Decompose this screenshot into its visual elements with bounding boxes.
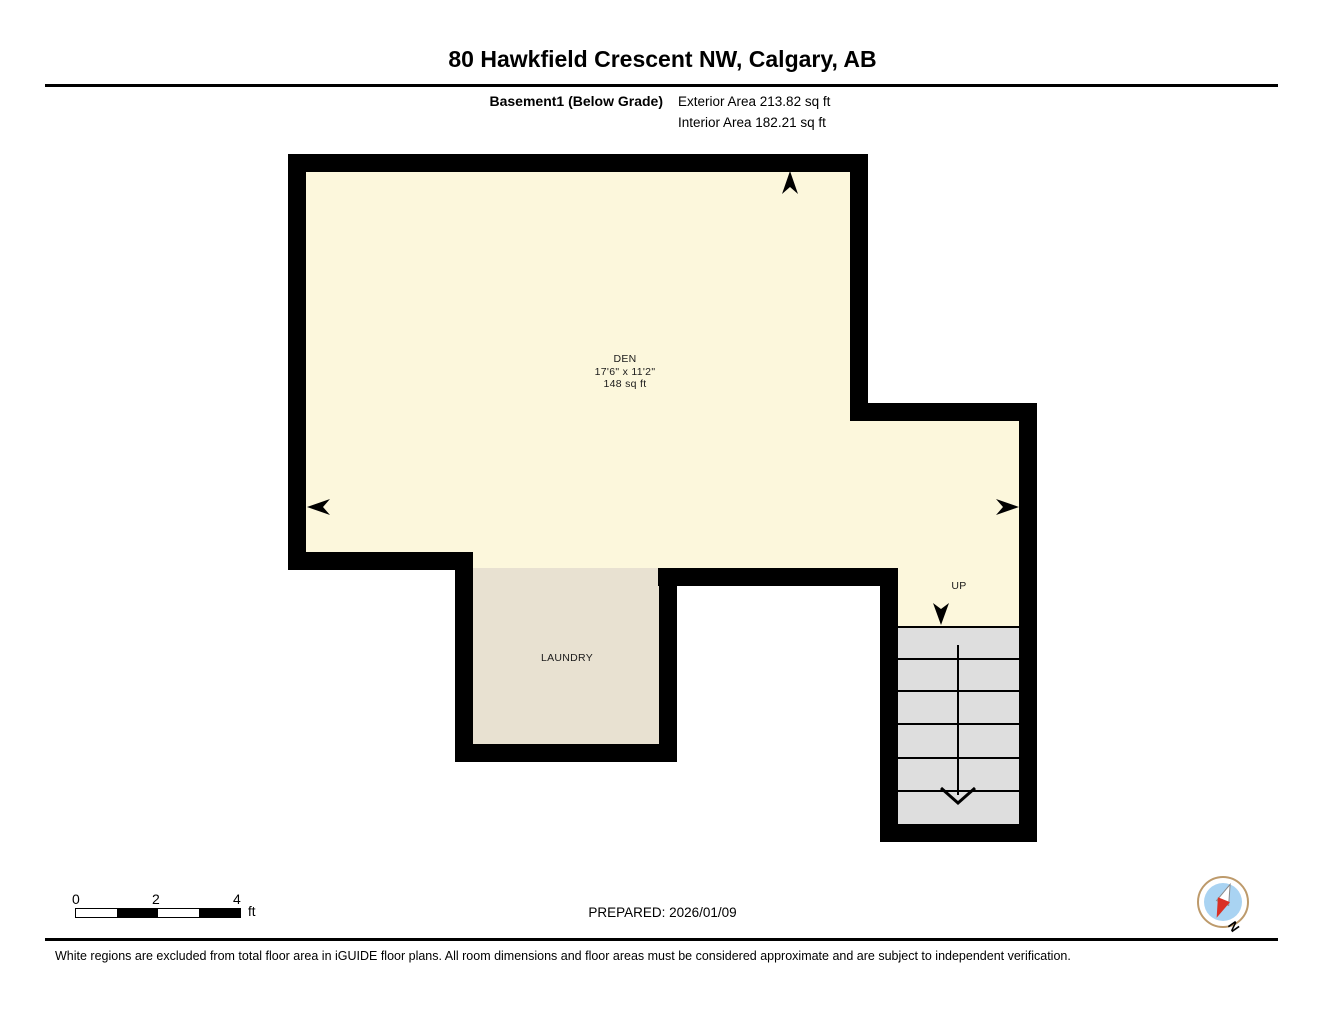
floor-label: Basement1 (Below Grade) [290, 93, 663, 109]
stairs-direction-arrow-icon [939, 786, 977, 806]
stair-landing [898, 568, 1019, 626]
wall-top [288, 154, 868, 172]
wall-laundry-left [455, 552, 473, 762]
wall-extension-top [850, 403, 1037, 421]
disclaimer-text: White regions are excluded from total fl… [55, 949, 1275, 963]
room-den-extension [850, 421, 1019, 568]
compass-needle [1197, 876, 1249, 928]
wall-den-bottom-right [658, 568, 898, 586]
den-dimensions: 17'6" x 11'2" [535, 366, 715, 379]
wall-laundry-bottom [455, 744, 677, 762]
exterior-area: Exterior Area 213.82 sq ft [678, 94, 830, 109]
laundry-label: LAUNDRY [477, 652, 657, 665]
interior-area: Interior Area 182.21 sq ft [678, 115, 826, 130]
wall-stairwell-left [880, 568, 898, 842]
up-label: UP [924, 580, 994, 593]
stairs-top-line [898, 626, 1019, 628]
compass-icon: N [1197, 876, 1249, 928]
floor-plan-page: 80 Hawkfield Crescent NW, Calgary, AB Ba… [0, 0, 1325, 1024]
prepared-date: PREPARED: 2026/01/09 [0, 905, 1325, 920]
wall-den-bottom-left [288, 552, 473, 570]
entry-arrow-right-icon [996, 499, 1019, 515]
wall-den-right [850, 154, 868, 421]
header-divider [45, 84, 1278, 87]
entry-arrow-up-icon [782, 171, 798, 194]
den-name: DEN [535, 353, 715, 366]
wall-stairs-bottom [880, 824, 1037, 842]
stairs-center-line [957, 645, 959, 795]
wall-left [288, 154, 306, 570]
wall-right [1019, 403, 1037, 842]
stairs [898, 626, 1019, 824]
den-area: 148 sq ft [535, 378, 715, 391]
den-label: DEN 17'6" x 11'2" 148 sq ft [535, 353, 715, 391]
wall-laundry-right [659, 568, 677, 762]
entry-arrow-left-icon [307, 499, 330, 515]
page-title: 80 Hawkfield Crescent NW, Calgary, AB [0, 46, 1325, 73]
footer-divider [45, 938, 1278, 941]
stairs-entry-arrow-icon [933, 603, 949, 625]
